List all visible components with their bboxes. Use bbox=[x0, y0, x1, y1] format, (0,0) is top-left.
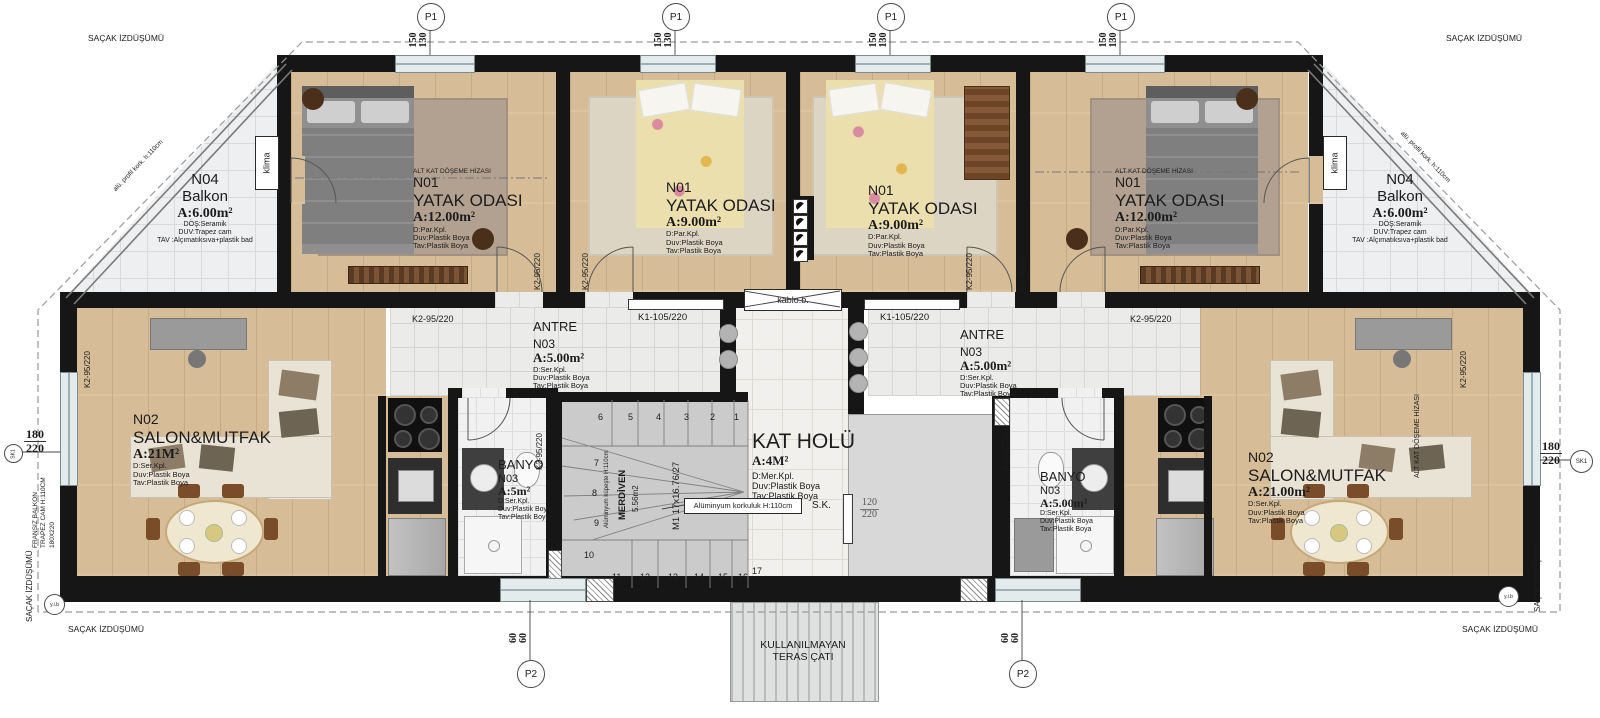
window bbox=[640, 55, 716, 73]
stair-number: 4 bbox=[656, 412, 661, 422]
french-balcony-dim: 180 220 bbox=[1540, 440, 1562, 466]
room-finish: TAV :Alçımatıksıva+plastik bad bbox=[135, 237, 275, 245]
room-no: N03 bbox=[533, 338, 590, 351]
kitchen-sink bbox=[1168, 470, 1204, 502]
room-area: A:5m² bbox=[498, 485, 551, 498]
room-label-salon-right: N02 SALON&MUTFAK A:21.00m² D:Ser.Kpl. Du… bbox=[1248, 450, 1386, 526]
bed-pillow bbox=[638, 82, 690, 118]
wall-banyo-left-side bbox=[448, 388, 458, 580]
marker-yib: y.i.b bbox=[1498, 586, 1519, 607]
room-area: A:9.00m² bbox=[666, 215, 776, 231]
bed-blanket bbox=[302, 128, 414, 246]
room-label-balcony-right: N04 Balkon A:6.00m² DÖŞ:Seramik DUV:Trap… bbox=[1330, 172, 1470, 245]
column-hatch bbox=[994, 398, 1010, 426]
chair bbox=[1303, 562, 1325, 576]
room-no: N03 bbox=[960, 346, 1017, 359]
terrace-line2: TERAS ÇATI bbox=[722, 652, 884, 664]
dim-bottom: 220 bbox=[24, 442, 46, 455]
wall-stair-top bbox=[562, 392, 748, 402]
door-tag-k2: K2-95/220 bbox=[84, 351, 93, 388]
dim-top: 120 bbox=[860, 498, 879, 510]
axis-marker-label: P1 bbox=[425, 12, 437, 23]
desk bbox=[150, 318, 247, 350]
dim-bottom: 220 bbox=[860, 510, 879, 521]
side-table bbox=[302, 88, 324, 110]
door-opening bbox=[1058, 388, 1102, 398]
sofa-cushion bbox=[279, 408, 320, 438]
burner bbox=[1164, 430, 1182, 448]
stair-number: 6 bbox=[598, 412, 603, 422]
korkuluk-callout: Alüminyum korkuluk H:110cm bbox=[684, 498, 802, 514]
stair-number: 14 bbox=[694, 572, 704, 582]
axis-marker-label: P1 bbox=[1115, 12, 1127, 23]
door-tag-k2: K2-95/220 bbox=[1002, 433, 1011, 470]
axis-marker-sk: SK1 bbox=[4, 444, 23, 463]
door-opening bbox=[1309, 156, 1323, 204]
desk bbox=[1355, 318, 1452, 350]
room-area: A:4M² bbox=[752, 454, 855, 469]
dim-bottom: 130 bbox=[664, 25, 674, 55]
door-opening bbox=[495, 292, 543, 308]
dim-bottom: 130 bbox=[419, 25, 429, 55]
dim-top: 180 bbox=[1540, 440, 1562, 454]
room-area: A:12.00m² bbox=[1115, 210, 1225, 226]
marker-yib-label: y.i.b bbox=[50, 602, 59, 608]
wall-banyo-right-side bbox=[1114, 388, 1124, 580]
room-no: N01 bbox=[413, 175, 523, 191]
plate bbox=[231, 538, 247, 554]
room-label-bed-midright: N01 YATAK ODASI A:9.00m² D:Par.Kpl. Duv:… bbox=[868, 183, 978, 259]
room-finish: DÖŞ:Seramik bbox=[135, 221, 275, 229]
stair-number: 10 bbox=[584, 550, 594, 560]
door-tag-k2: K2-95/220 bbox=[1020, 253, 1029, 290]
eave-label: SAÇAK İZDÜŞÜMÜ bbox=[1446, 34, 1522, 44]
room-label-bed-right: ALT KAT DÖŞEME HİZASI N01 YATAK ODASI A:… bbox=[1115, 168, 1225, 251]
marker-yib-label: y.i.b bbox=[1504, 594, 1513, 600]
eave-label: SAÇAK İZDÜŞÜMÜ bbox=[88, 34, 164, 44]
bench bbox=[348, 266, 468, 284]
wall-bed-divider bbox=[556, 72, 570, 294]
bed-pillow bbox=[880, 82, 932, 118]
bed-pillow bbox=[828, 83, 879, 117]
eave-label: SAÇAK İZDÜŞÜMÜ bbox=[1534, 540, 1543, 612]
eave-label: SAÇAK İZDÜŞÜMÜ bbox=[68, 625, 144, 635]
desk-chair bbox=[1393, 350, 1411, 368]
room-area: A:5.00m² bbox=[960, 359, 1017, 374]
floor-plan: klima klima kablo.b. bbox=[0, 0, 1600, 718]
stair-number: 17 bbox=[752, 566, 762, 576]
room-name: Balkon bbox=[135, 189, 275, 206]
fridge bbox=[388, 518, 446, 576]
bed-pillow bbox=[690, 83, 741, 117]
room-area: A:21.00m² bbox=[1248, 485, 1386, 501]
chair bbox=[178, 562, 200, 576]
entry-door-leaf bbox=[864, 299, 960, 310]
wall-kitchen-right-stub bbox=[1204, 396, 1212, 580]
room-finish: DÖŞ:Seramik bbox=[1330, 221, 1470, 229]
desk-chair bbox=[188, 350, 206, 368]
column-hatch bbox=[586, 578, 614, 602]
french-balcony-window bbox=[60, 372, 78, 486]
window-dim: 6060 bbox=[509, 624, 529, 652]
door-tag-k2: K2-95/220 bbox=[534, 253, 543, 290]
room-name: YATAK ODASI bbox=[413, 191, 523, 210]
room-area: A:6.00m² bbox=[135, 206, 275, 222]
burner bbox=[420, 406, 438, 424]
window-dim: 150130 bbox=[654, 25, 674, 55]
room-label-bed-midleft: N01 YATAK ODASI A:9.00m² D:Par.Kpl. Duv:… bbox=[666, 180, 776, 256]
stair-kupeste-note: Alüminyum küpeşte H:110cm bbox=[604, 450, 611, 528]
burner bbox=[1164, 404, 1186, 426]
column-symbol bbox=[793, 247, 808, 262]
stair-name: MERDİVEN bbox=[618, 470, 629, 520]
room-no: N02 bbox=[1248, 450, 1386, 466]
stair-number: 1 bbox=[734, 412, 739, 422]
axis-marker-label: SK1 bbox=[1576, 459, 1587, 465]
chair bbox=[264, 518, 278, 540]
stair-number: 9 bbox=[594, 518, 599, 528]
door-opening bbox=[967, 292, 1015, 308]
french-balcony-note-line: 180X220 bbox=[49, 477, 57, 548]
window bbox=[500, 578, 586, 602]
sk-door-leaf bbox=[843, 494, 853, 544]
room-finish: Tav:Plastik Boya bbox=[868, 250, 978, 258]
door-opening bbox=[585, 292, 633, 308]
shaft-circle bbox=[849, 322, 868, 341]
window-dim: 150130 bbox=[1099, 25, 1119, 55]
room-finish: TAV :Alçımatıksıva+plastik bad bbox=[1330, 237, 1470, 245]
stair-area: 5.56m2 bbox=[632, 485, 641, 512]
bed-pillow bbox=[361, 101, 409, 123]
stair-number: 15 bbox=[718, 572, 728, 582]
kitchen-counter bbox=[388, 458, 442, 514]
burner bbox=[394, 404, 416, 426]
door-tag-k1: K1-105/220 bbox=[880, 313, 929, 324]
bed-pillow bbox=[1151, 101, 1199, 123]
room-name: Balkon bbox=[1330, 189, 1470, 206]
axis-marker-p2: P2 bbox=[517, 660, 545, 688]
plate bbox=[1356, 538, 1372, 554]
room-finish: Tav:Plastik Boya bbox=[960, 390, 1017, 398]
window bbox=[855, 55, 931, 73]
room-finish: Duv:Plastik Boya bbox=[752, 481, 855, 491]
window-dim: 150130 bbox=[409, 25, 429, 55]
plate bbox=[179, 510, 195, 526]
stair-number: 7 bbox=[594, 458, 599, 468]
chair bbox=[1347, 562, 1369, 576]
room-area: A:6.00m² bbox=[1330, 206, 1470, 222]
burner bbox=[418, 428, 440, 450]
room-name: ANTRE bbox=[533, 320, 590, 335]
door-tag-k2: K2-95/220 bbox=[412, 314, 454, 324]
stair-m1-note: M1 17x16.76/27 bbox=[672, 462, 683, 530]
dim-bottom: 60 bbox=[1011, 624, 1021, 652]
axis-marker-p2: P2 bbox=[1009, 660, 1037, 688]
door-tag-k2: K2-95/220 bbox=[1460, 351, 1469, 388]
marker-yib: y.i.b bbox=[44, 594, 65, 615]
chair bbox=[1389, 518, 1403, 540]
column-hatch bbox=[960, 578, 988, 602]
shaft-circle bbox=[719, 324, 738, 343]
wall-kitchen-left-stub bbox=[378, 396, 386, 580]
french-balcony-note-line: FRANSIZ BALKON bbox=[32, 477, 40, 548]
cable-shaft-label: kablo.b. bbox=[777, 295, 809, 305]
plate bbox=[1304, 538, 1320, 554]
room-name: YATAK ODASI bbox=[666, 196, 776, 215]
room-label-bed-left: ALT KAT DÖŞEME HİZASI N01 YATAK ODASI A:… bbox=[413, 168, 523, 251]
shaft-circle bbox=[849, 348, 868, 367]
dim-bottom: 130 bbox=[879, 25, 889, 55]
room-name: ANTRE bbox=[960, 328, 1017, 343]
bowl bbox=[1330, 524, 1348, 542]
column-symbol bbox=[793, 199, 808, 214]
room-finish: Duv:Plastik Boya bbox=[498, 506, 551, 514]
stair-number: 12 bbox=[640, 572, 650, 582]
side-table bbox=[1066, 228, 1088, 250]
room-no: N01 bbox=[666, 180, 776, 196]
shaft-circle bbox=[719, 350, 738, 369]
door-opening bbox=[462, 388, 506, 398]
stair-number: 8 bbox=[592, 488, 597, 498]
room-finish: Tav:Plastik Boya bbox=[1248, 517, 1386, 525]
bowl bbox=[205, 524, 223, 542]
korkuluk-note: Alüminyum korkuluk H:110cm bbox=[694, 502, 793, 510]
window-dim: 6060 bbox=[1001, 624, 1021, 652]
stair-number: 2 bbox=[710, 412, 715, 422]
chair bbox=[146, 518, 160, 540]
room-finish: Tav:Plastik Boya bbox=[666, 247, 776, 255]
stair-number: 3 bbox=[684, 412, 689, 422]
window bbox=[995, 578, 1081, 602]
terrace-line1: KULLANILMAYAN bbox=[722, 640, 884, 652]
sofa-cushion bbox=[1281, 408, 1322, 438]
room-area: A:5.00m² bbox=[533, 351, 590, 366]
room-label-hall: KAT HOLÜ A:4M² D:Mer.Kpl. Duv:Plastik Bo… bbox=[752, 430, 855, 501]
shower-drain bbox=[488, 540, 500, 552]
stair-number: 5 bbox=[628, 412, 633, 422]
sk-door-dim: 120 220 bbox=[860, 498, 879, 520]
room-finish: Tav:Plastik Boya bbox=[1040, 526, 1093, 534]
bench bbox=[1140, 266, 1260, 284]
burner bbox=[394, 430, 412, 448]
klima-label: klima bbox=[262, 152, 272, 173]
sk-door-label: S.K. bbox=[812, 500, 831, 511]
room-finish: D:Mer.Kpl. bbox=[752, 471, 855, 481]
dim-top: 180 bbox=[24, 428, 46, 442]
room-area: A:12.00m² bbox=[413, 210, 523, 226]
column-symbol bbox=[793, 231, 808, 246]
sofa-cushion bbox=[1280, 369, 1321, 400]
door-tag-k1: K1-105/220 bbox=[638, 313, 687, 324]
room-name: YATAK ODASI bbox=[868, 199, 978, 218]
door-opening bbox=[1057, 292, 1105, 308]
room-no: N01 bbox=[1115, 175, 1225, 191]
axis-marker-label: P1 bbox=[670, 12, 682, 23]
dim-bottom: 220 bbox=[1540, 454, 1562, 467]
wall-bottom bbox=[60, 576, 1540, 602]
cable-shaft: kablo.b. bbox=[744, 289, 842, 311]
shower-tray bbox=[464, 516, 522, 574]
room-no: N04 bbox=[135, 172, 275, 189]
room-finish: DUV:Trapez cam bbox=[135, 229, 275, 237]
eave-label: SAÇAK İZDÜŞÜMÜ bbox=[26, 550, 35, 622]
alt-kat-note: ALT KAT DÖŞEME HİZASI bbox=[1414, 394, 1422, 478]
french-balcony-dim: 180 220 bbox=[24, 428, 46, 454]
plate bbox=[231, 510, 247, 526]
shower-drain bbox=[1080, 540, 1092, 552]
dim-bottom: 60 bbox=[519, 624, 529, 652]
room-finish: Tav:Plastik Boya bbox=[533, 382, 590, 390]
room-area: A:9.00m² bbox=[868, 218, 978, 234]
axis-marker-sk: SK1 bbox=[1570, 450, 1593, 473]
chair bbox=[222, 562, 244, 576]
terrace-label: KULLANILMAYAN TERAS ÇATI bbox=[722, 640, 884, 664]
axis-marker-label: SK1 bbox=[10, 449, 16, 458]
french-balcony-note: FRANSIZ BALKON TRAPEZ CAM H:110CM 180X22… bbox=[32, 477, 57, 548]
wall-balcony-inner-left bbox=[277, 60, 291, 306]
kitchen-sink bbox=[398, 470, 434, 502]
bed-left bbox=[302, 86, 414, 254]
room-area: A:21M² bbox=[133, 447, 271, 463]
shaft-circle bbox=[849, 374, 868, 393]
column-symbol bbox=[793, 215, 808, 230]
room-finish: DUV:Trapez cam bbox=[1330, 229, 1470, 237]
eave-label: SAÇAK İZDÜŞÜMÜ bbox=[1462, 625, 1538, 635]
french-balcony-window bbox=[1523, 372, 1541, 486]
room-name: SALON&MUTFAK bbox=[133, 428, 271, 447]
french-balcony-note-line: TRAPEZ CAM H:110CM bbox=[40, 477, 48, 548]
klima-label: klima bbox=[1330, 152, 1340, 173]
cooktop bbox=[388, 398, 442, 452]
room-finish: Tav:Plastik Boya bbox=[498, 514, 551, 522]
stair-number: 13 bbox=[668, 572, 678, 582]
room-no: N03 bbox=[498, 473, 551, 485]
wardrobe bbox=[964, 86, 1010, 180]
side-table bbox=[1236, 88, 1258, 110]
stair-number: 11 bbox=[612, 572, 621, 582]
window bbox=[395, 55, 475, 73]
room-finish: Tav:Plastik Boya bbox=[1115, 242, 1225, 250]
room-finish: Tav:Plastik Boya bbox=[133, 479, 271, 487]
door-opening bbox=[291, 156, 305, 204]
sofa-cushion bbox=[278, 369, 319, 400]
room-no: N01 bbox=[868, 183, 978, 199]
room-finish: D:Ser.Kpl. bbox=[1040, 510, 1093, 518]
room-name: YATAK ODASI bbox=[1115, 191, 1225, 210]
room-label-antre-left: ANTRE N03 A:5.00m² D:Ser.Kpl. Duv:Plasti… bbox=[533, 320, 590, 391]
door-tag-k2: K2-95/220 bbox=[582, 253, 591, 290]
room-finish: Duv:Plastik Boya bbox=[1040, 518, 1093, 526]
dining-table bbox=[165, 500, 264, 564]
door-tag-k2: K2-95/220 bbox=[536, 433, 545, 470]
axis-marker-label: P2 bbox=[1017, 669, 1029, 680]
axis-marker-label: P1 bbox=[885, 12, 897, 23]
room-area: A:5.00m² bbox=[1040, 497, 1093, 510]
room-label-banyo-right: BANYO N03 A:5.00m² D:Ser.Kpl. Duv:Plasti… bbox=[1040, 470, 1093, 534]
entry-door-leaf bbox=[628, 299, 724, 310]
wash-basin bbox=[470, 464, 498, 492]
room-label-antre-right: ANTRE N03 A:5.00m² D:Ser.Kpl. Duv:Plasti… bbox=[960, 328, 1017, 399]
room-label-balcony-left: N04 Balkon A:6.00m² DÖŞ:Seramik DUV:Trap… bbox=[135, 172, 275, 245]
axis-marker-label: P2 bbox=[525, 669, 537, 680]
room-label-salon-left: N02 SALON&MUTFAK A:21M² D:Ser.Kpl. Duv:P… bbox=[133, 412, 271, 488]
room-name: SALON&MUTFAK bbox=[1248, 466, 1386, 485]
stair-number: 16 bbox=[738, 572, 748, 582]
room-no: N03 bbox=[1040, 485, 1093, 497]
door-tag-k2: K2-95/220 bbox=[966, 253, 975, 290]
door-tag-k2: K2-95/220 bbox=[1130, 314, 1172, 324]
room-name: BANYO bbox=[1040, 470, 1093, 485]
plate bbox=[179, 538, 195, 554]
room-name: KAT HOLÜ bbox=[752, 430, 855, 454]
room-no: N02 bbox=[133, 412, 271, 428]
room-finish: Tav:Plastik Boya bbox=[413, 242, 523, 250]
dim-bottom: 130 bbox=[1109, 25, 1119, 55]
window-dim: 150130 bbox=[869, 25, 889, 55]
room-finish: D:Ser.Kpl. bbox=[498, 498, 551, 506]
window bbox=[1085, 55, 1165, 73]
